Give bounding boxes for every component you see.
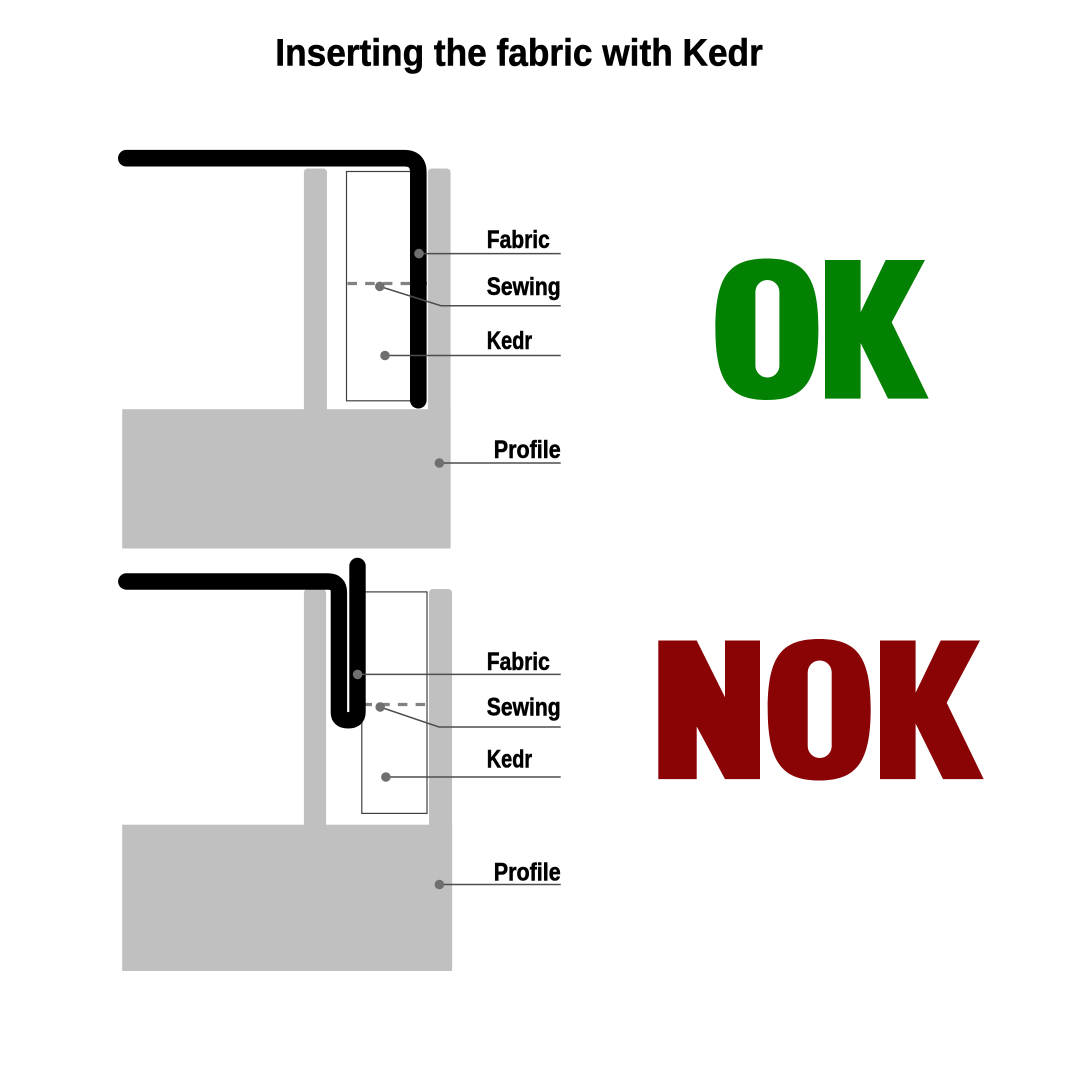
- svg-text:Fabric: Fabric: [487, 227, 550, 254]
- svg-text:Inserting the fabric with Kedr: Inserting the fabric with Kedr: [275, 33, 763, 75]
- svg-text:Fabric: Fabric: [487, 649, 550, 676]
- svg-text:Sewing: Sewing: [487, 694, 561, 721]
- svg-text:Profile: Profile: [494, 437, 561, 464]
- svg-text:Kedr: Kedr: [487, 328, 533, 355]
- svg-text:Sewing: Sewing: [487, 274, 561, 301]
- svg-text:Kedr: Kedr: [487, 747, 533, 774]
- svg-text:Profile: Profile: [494, 859, 561, 886]
